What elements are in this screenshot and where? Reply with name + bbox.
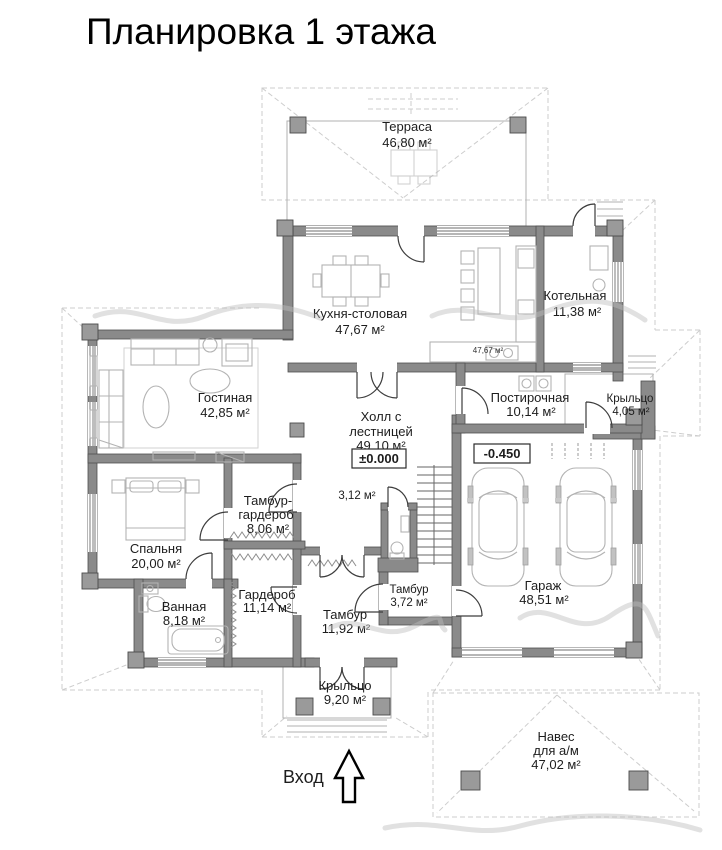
living-area: 42,85 м² (200, 405, 250, 420)
laundry-area: 10,14 м² (506, 404, 556, 419)
wc-area: 3,12 м² (338, 490, 375, 502)
tambour-wardrobe-name-1: Тамбур- (244, 493, 292, 508)
garage-gate-right (554, 648, 614, 657)
tambour-small-name: Тамбур (389, 584, 428, 596)
carport-area: 47,02 м² (531, 757, 581, 772)
page-title: Планировка 1 этажа (86, 11, 436, 52)
tambour-small-area: 3,72 м² (390, 597, 427, 609)
floor-plan-drawing: Терраса 46,80 м² Кухня-столовая 47,67 м²… (0, 0, 722, 850)
carport-name-1: Навес (537, 729, 575, 744)
carport-name-2: для а/м (533, 743, 579, 758)
wardrobe-area: 11,14 м² (243, 600, 292, 615)
floor-plan-page: Терраса 46,80 м² Кухня-столовая 47,67 м²… (0, 0, 722, 850)
entrance: Вход (283, 751, 363, 802)
porch-right-name: Крыльцо (607, 393, 654, 405)
laundry-appliances (519, 376, 551, 391)
porch-front-name: Крыльцо (318, 678, 371, 693)
entrance-arrow-icon (335, 751, 363, 802)
boiler-exterior-steps (597, 202, 623, 216)
tambour-wardrobe-area: 8,06 м² (247, 521, 290, 536)
bathroom-area: 8,18 м² (163, 613, 206, 628)
bedroom-area: 20,00 м² (131, 556, 181, 571)
terrace-name: Терраса (382, 119, 433, 134)
level-ground: ±0.000 (359, 451, 399, 466)
entrance-label: Вход (283, 767, 324, 787)
kitchen-name: Кухня-столовая (313, 306, 407, 321)
garage-cars (467, 468, 617, 586)
bedroom-name: Спальня (130, 541, 182, 556)
boiler-equipment (590, 246, 608, 291)
laundry-name: Постирочная (491, 390, 570, 405)
living-name: Гостиная (198, 390, 253, 405)
garage-name: Гараж (525, 578, 562, 593)
wc-fixtures (390, 516, 409, 559)
level-garage: -0.450 (484, 446, 521, 461)
garage-gate-left (462, 648, 522, 657)
hall-name-1: Холл с (361, 409, 402, 424)
bathroom-name: Ванная (162, 599, 207, 614)
kitchen-furniture (313, 246, 536, 362)
garage-step-hatch (552, 443, 604, 459)
staircase (417, 465, 452, 565)
porch-right-area: 4,05 м² (612, 406, 649, 418)
garage-area: 48,51 м² (519, 592, 569, 607)
tambour-main-name: Тамбур (323, 607, 367, 622)
kitchen-area: 47,67 м² (335, 322, 385, 337)
porch-front-area: 9,20 м² (324, 692, 367, 707)
kitchen-area-note: 47,67 м² (473, 346, 504, 355)
hall-name-2: лестницей (349, 424, 413, 439)
bedroom-furniture (112, 478, 199, 540)
terrace-area: 46,80 м² (382, 135, 432, 150)
tambour-wardrobe-name-2: гардероб (238, 507, 293, 522)
